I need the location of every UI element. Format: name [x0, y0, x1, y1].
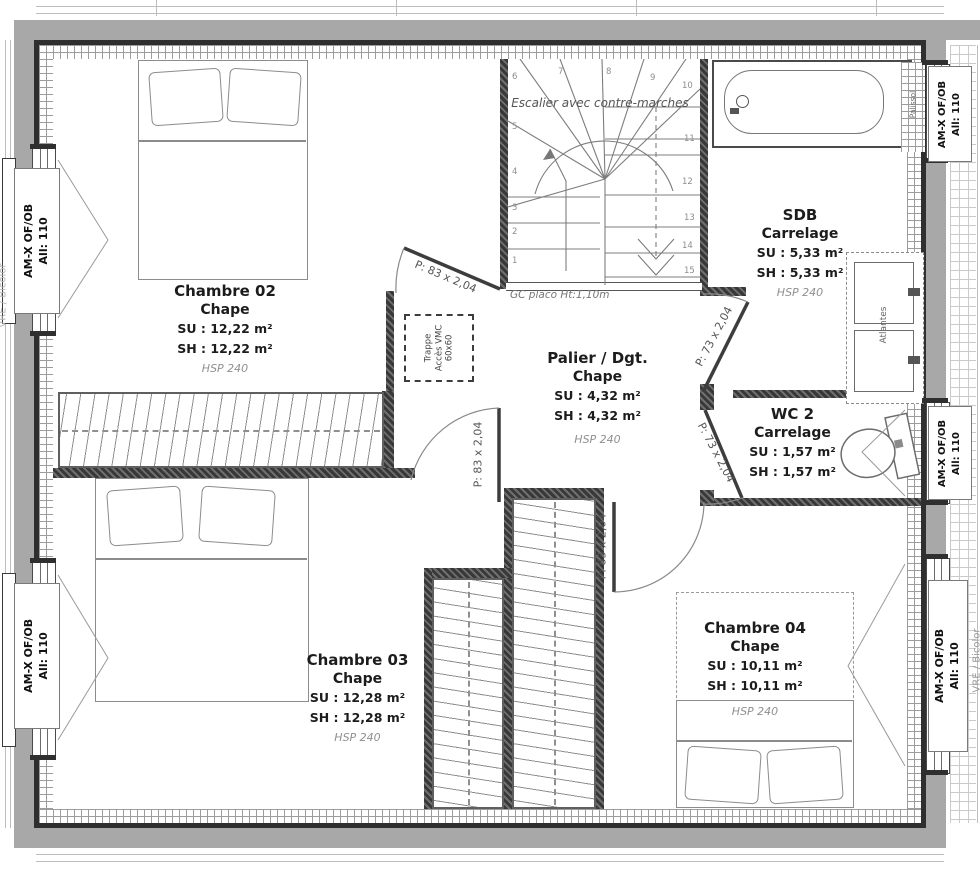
room-name: WC 2	[700, 404, 885, 424]
room-sh: SH : 12,28 m²	[250, 708, 465, 727]
faucet-icon	[736, 95, 749, 108]
room-finish: Chape	[495, 368, 700, 386]
stair-step-number: 1	[512, 256, 517, 266]
window-cap	[922, 770, 948, 775]
window-swing	[58, 160, 108, 318]
window-cap	[922, 60, 948, 65]
room-finish: Carrelage	[700, 225, 900, 243]
wall-shaft-left	[504, 488, 512, 809]
room-hsp: HSP 240	[115, 362, 335, 375]
stair-step-number: 15	[684, 266, 695, 276]
room-su: SU : 5,33 m²	[700, 243, 900, 262]
staircase	[508, 59, 700, 285]
room-finish: Chape	[115, 301, 335, 319]
room-sh: SH : 1,57 m²	[700, 462, 885, 481]
wall-chambre04-north	[702, 498, 921, 506]
stair-step-number: 5	[512, 122, 517, 132]
insulation-top	[39, 45, 921, 59]
window-label: AM-X OF/OB All: 110	[937, 419, 964, 486]
window-sill: All: 110	[950, 419, 964, 486]
vre-text: VRE / Bicolor	[972, 628, 980, 692]
room-sh: SH : 4,32 m²	[495, 406, 700, 425]
stair-guard-text: GC placo Ht:1,10m	[510, 289, 610, 301]
room-label-palier: Palier / Dgt. Chape SU : 4,32 m² SH : 4,…	[495, 348, 700, 446]
palissol-label: Palissol	[909, 71, 918, 139]
door-size: P: 83 x 2,04	[413, 258, 479, 296]
wall-chambre02-palier	[386, 291, 394, 395]
window-type: AM-X OF/OB	[22, 619, 37, 693]
window-type: AM-X OF/OB	[937, 419, 951, 486]
pillow	[684, 745, 762, 804]
stair-step-number: 8	[606, 67, 611, 77]
pillow	[106, 485, 184, 546]
roof-tick	[636, 0, 637, 16]
closet-shaft	[512, 498, 596, 809]
roof-line	[36, 13, 944, 14]
stair-step-number: 3	[512, 203, 517, 213]
stair-title-text: Escalier avec contre-marches	[511, 96, 689, 110]
room-name: SDB	[700, 205, 900, 225]
window-label-left-2: AM-X OF/OB All: 110	[14, 583, 60, 729]
room-su: SU : 4,32 m²	[495, 386, 700, 405]
exterior-wall-top	[14, 20, 980, 40]
room-label-chambre04: Chambre 04 Chape SU : 10,11 m² SH : 10,1…	[645, 618, 865, 718]
window-label-right-3: AM-X OF/OB All: 110	[928, 580, 968, 752]
stair-step-number: 2	[512, 227, 517, 237]
exterior-wall-bottom	[14, 828, 946, 848]
roof-tick	[876, 0, 877, 16]
blanket-line	[676, 740, 852, 742]
door-size: P: 83 x 2,04	[596, 514, 609, 580]
closet-chambre02	[58, 392, 384, 468]
wall-stair-left	[500, 59, 508, 289]
wall-closet03-top	[424, 568, 512, 578]
stair-step-number: 14	[682, 241, 693, 251]
room-label-chambre03: Chambre 03 Chape SU : 12,28 m² SH : 12,2…	[250, 650, 465, 744]
door-label-chambre02: P: 83 x 2,04	[399, 252, 492, 301]
room-hsp: HSP 240	[700, 286, 900, 299]
pillow	[198, 485, 276, 546]
room-label-chambre02: Chambre 02 Chape SU : 12,22 m² SH : 12,2…	[115, 281, 335, 375]
structural-wall-bottom	[34, 823, 926, 828]
room-label-wc2: WC 2 Carrelage SU : 1,57 m² SH : 1,57 m²	[700, 404, 885, 481]
pillow	[766, 745, 844, 804]
faucet-icon	[730, 108, 739, 114]
window-sill: All: 110	[950, 80, 964, 147]
blanket-line	[95, 558, 307, 560]
window-type: AM-X OF/OB	[933, 629, 948, 703]
wall-closet-bottom	[53, 468, 415, 478]
door-size: P: 83 x 2,04	[472, 422, 485, 488]
door-label-chambre03: P: 83 x 2,04	[472, 409, 485, 501]
roof-line	[36, 6, 944, 7]
shutter-finish-label: VRE / Bicolor	[972, 596, 980, 726]
door-chambre03-arc	[411, 408, 499, 480]
stair-title: Escalier avec contre-marches	[505, 96, 695, 110]
stair-step-number: 11	[684, 134, 695, 144]
window-cap	[922, 554, 948, 559]
stair-step-number: 9	[650, 73, 655, 83]
room-finish: Carrelage	[700, 424, 885, 442]
window-sill: All: 110	[948, 629, 963, 703]
footer-line	[36, 861, 944, 862]
roof-tick	[156, 0, 157, 16]
floor-plan: Atlantes Palissol Trappe Accès VMC 60x60	[0, 0, 980, 870]
pillow	[226, 68, 302, 127]
window-sill: All: 110	[37, 619, 52, 693]
window-cap	[30, 558, 56, 563]
window-label: AM-X OF/OB All: 110	[22, 619, 52, 693]
room-hsp: HSP 240	[250, 731, 465, 744]
window-label-left-1: AM-X OF/OB All: 110	[14, 168, 60, 314]
room-finish: Chape	[250, 670, 465, 688]
window-sill: All: 110	[37, 204, 52, 278]
window-label: AM-X OF/OB All: 110	[937, 80, 964, 147]
vre-text: VRE / Bicolor	[0, 263, 9, 327]
room-su: SU : 12,22 m²	[115, 319, 335, 338]
stair-step-number: 13	[684, 213, 695, 223]
room-name: Palier / Dgt.	[495, 348, 700, 368]
blanket-line	[138, 140, 306, 142]
window-label: AM-X OF/OB All: 110	[22, 204, 52, 278]
shutter-finish-label-clipped: VRE / Bicolor	[0, 231, 9, 361]
window-type: AM-X OF/OB	[937, 80, 951, 147]
room-su: SU : 12,28 m²	[250, 688, 465, 707]
room-sh: SH : 12,22 m²	[115, 339, 335, 358]
room-label-sdb: SDB Carrelage SU : 5,33 m² SH : 5,33 m² …	[700, 205, 900, 299]
wall-node-wc-south	[700, 490, 714, 506]
trappe-label: Trappe Accès VMC 60x60	[423, 325, 455, 371]
window-label-right-wc: AM-X OF/OB All: 110	[928, 406, 972, 500]
window-cap	[30, 331, 56, 336]
room-hsp: HSP 240	[645, 705, 865, 718]
wall-shaft-top	[504, 488, 604, 498]
window-cap	[922, 398, 948, 403]
stair-step-number: 4	[512, 167, 517, 177]
stair-step-number: 6	[512, 72, 517, 82]
atlantes-label: Atlantes	[879, 307, 889, 344]
room-su: SU : 10,11 m²	[645, 656, 865, 675]
room-name: Chambre 02	[115, 281, 335, 301]
window-cap	[922, 500, 948, 505]
window-cap	[30, 755, 56, 760]
palissol-text: Palissol	[909, 91, 918, 118]
room-su: SU : 1,57 m²	[700, 442, 885, 461]
stair-step-number: 7	[558, 67, 563, 77]
roof-tick	[396, 0, 397, 16]
trappe-line: Accès VMC	[434, 325, 445, 371]
trappe-vmc: Trappe Accès VMC 60x60	[404, 314, 474, 382]
window-label: AM-X OF/OB All: 110	[933, 629, 963, 703]
trappe-line: Trappe	[423, 325, 434, 371]
door-chambre04-arc	[614, 502, 704, 592]
room-finish: Chape	[645, 638, 865, 656]
door-label-chambre04: P: 83 x 2,04	[596, 501, 609, 593]
room-name: Chambre 03	[250, 650, 465, 670]
pillow	[148, 68, 224, 127]
faucet-icon	[908, 356, 920, 364]
stair-step-number: 10	[682, 81, 693, 91]
window-label-right-bath: AM-X OF/OB All: 110	[928, 66, 972, 162]
footer-line	[36, 854, 944, 855]
stair-guard-note: GC placo Ht:1,10m	[510, 289, 610, 301]
insulation-bottom	[39, 809, 921, 823]
window-type: AM-X OF/OB	[22, 204, 37, 278]
room-sh: SH : 5,33 m²	[700, 263, 900, 282]
room-name: Chambre 04	[645, 618, 865, 638]
room-hsp: HSP 240	[495, 433, 700, 446]
trappe-line: 60x60	[444, 325, 455, 371]
room-sh: SH : 10,11 m²	[645, 676, 865, 695]
stair-step-number: 12	[682, 177, 693, 187]
faucet-icon	[908, 288, 920, 296]
window-cap	[30, 144, 56, 149]
